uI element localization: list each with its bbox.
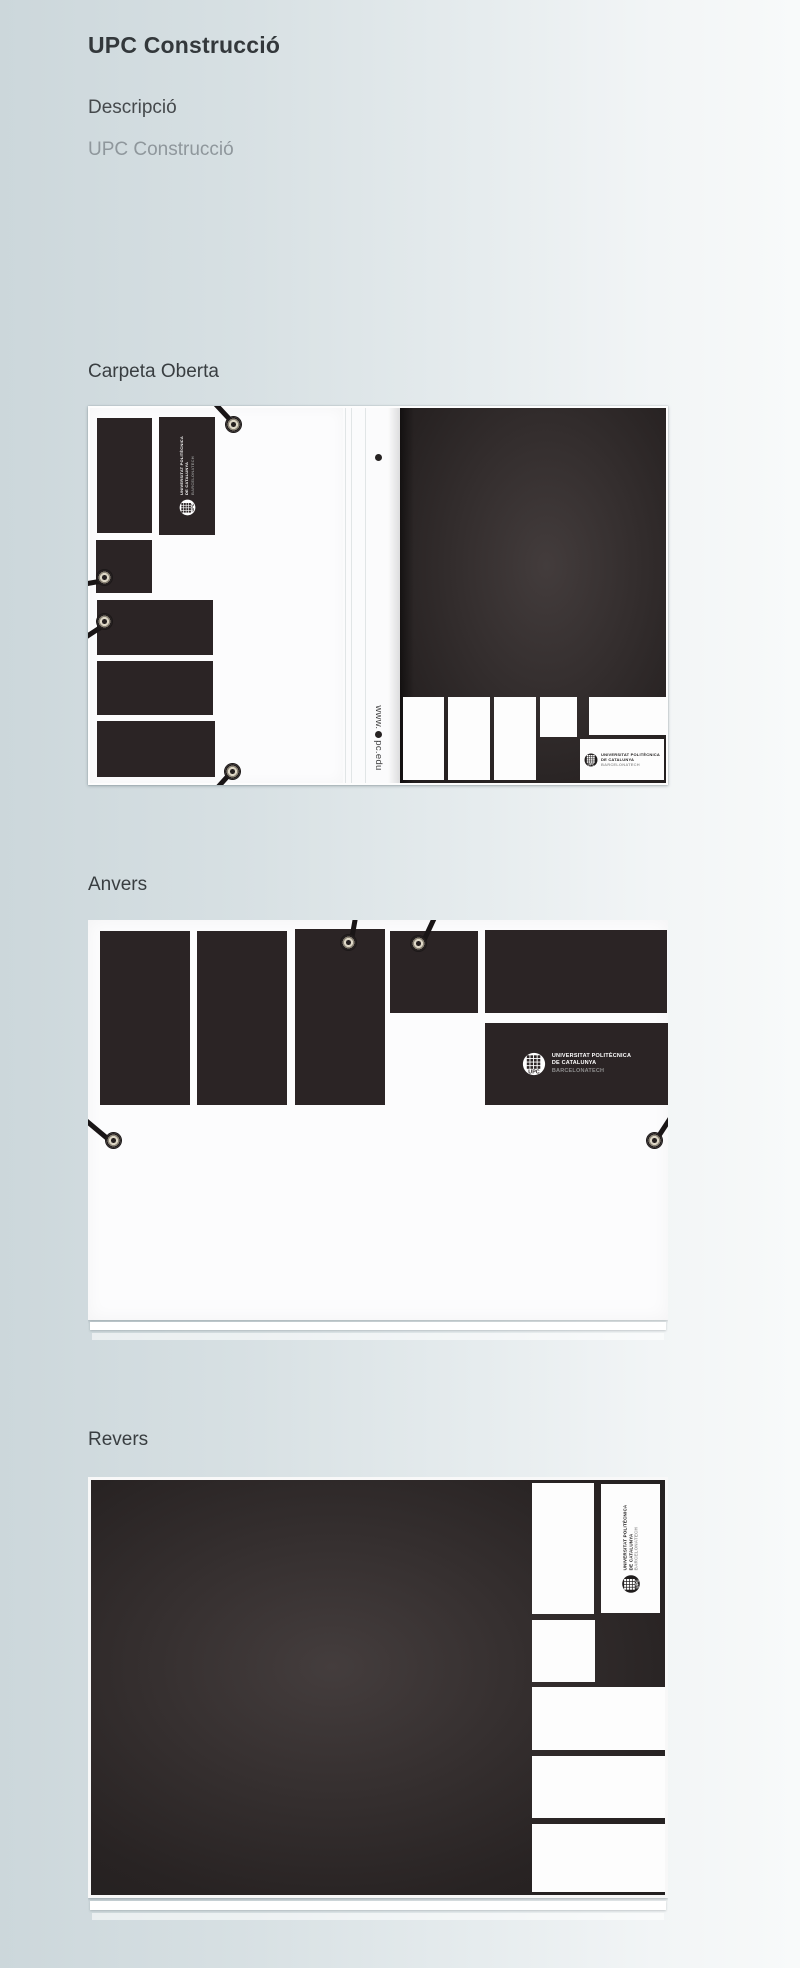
black-tag: [295, 929, 385, 1105]
black-tag: [97, 418, 152, 533]
white-card: [540, 697, 577, 737]
grommet-icon: [225, 764, 240, 779]
brand-name-line2: DE CATALUNYA: [628, 1504, 634, 1570]
folder-bottom-edge: [92, 1913, 664, 1920]
page-subtitle: Descripció: [88, 97, 177, 119]
spine-url-after: pc.edu: [374, 740, 385, 770]
brand-text: UNIVERSITAT POLITÈCNICA DE CATALUNYA BAR…: [552, 1053, 631, 1074]
upc-logo-icon: UPC: [621, 1574, 640, 1593]
anvers-image: UPC UNIVERSITAT POLITÈCNICA DE CATALUNYA…: [88, 920, 668, 1345]
white-card: [403, 697, 444, 780]
svg-text:UPC: UPC: [634, 1579, 639, 1588]
folder-bottom-edge: [90, 1901, 666, 1910]
white-card: [532, 1687, 665, 1750]
white-card: [494, 697, 536, 780]
black-tag: [485, 930, 667, 1013]
spine-crease: [351, 408, 352, 783]
spine-url: www. pc.edu: [367, 687, 391, 785]
spine-hole-icon: [375, 454, 382, 461]
grommet-icon: [341, 935, 356, 950]
black-tag: [97, 661, 213, 715]
brand-tagline: BARCELONATECH: [601, 762, 660, 767]
upc-logo-icon: UPC: [179, 499, 196, 516]
svg-text:UPC: UPC: [528, 1069, 539, 1075]
section-heading-revers: Revers: [88, 1429, 148, 1451]
folder-bottom-edge: [90, 1322, 666, 1330]
upc-logo: UPC UNIVERSITAT POLITÈCNICA DE CATALUNYA…: [605, 1491, 656, 1606]
grommet-icon: [97, 614, 112, 629]
upc-logo-icon: UPC: [522, 1052, 546, 1076]
black-tag: [390, 931, 478, 1013]
upc-logo: UPC UNIVERSITAT POLITÈCNICA DE CATALUNYA…: [485, 1023, 668, 1105]
spine-hole-icon: [376, 731, 383, 738]
brand-text: UNIVERSITAT POLITÈCNICA DE CATALUNYA BAR…: [622, 1504, 640, 1570]
upc-logo: UPC UNIVERSITAT POLITÈCNICA DE CATALUNYA…: [163, 424, 211, 528]
brand-tagline: BARCELONATECH: [552, 1068, 631, 1075]
white-card: [532, 1620, 595, 1682]
white-card: [448, 697, 490, 780]
upc-logo: UPC UNIVERSITAT POLITÈCNICA DE CATALUNYA…: [580, 739, 664, 780]
brand-name-line2: DE CATALUNYA: [552, 1060, 631, 1067]
spine-crease: [345, 408, 346, 783]
brand-text: UNIVERSITAT POLITÈCNICA DE CATALUNYA BAR…: [601, 752, 660, 768]
white-card: [532, 1483, 594, 1614]
grommet-icon: [106, 1133, 121, 1148]
page-description: UPC Construcció: [88, 139, 234, 161]
white-card: [532, 1756, 665, 1818]
carpeta-oberta-image: UPC UNIVERSITAT POLITÈCNICA DE CATALUNYA…: [88, 406, 668, 785]
vertical-logo-card: UPC UNIVERSITAT POLITÈCNICA DE CATALUNYA…: [601, 1484, 660, 1613]
grommet-icon: [97, 570, 112, 585]
revers-image: UPC UNIVERSITAT POLITÈCNICA DE CATALUNYA…: [88, 1477, 668, 1920]
logo-tag: UPC UNIVERSITAT POLITÈCNICA DE CATALUNYA…: [485, 1023, 668, 1105]
svg-text:UPC: UPC: [588, 762, 595, 766]
logo-card: UPC UNIVERSITAT POLITÈCNICA DE CATALUNYA…: [580, 739, 664, 780]
grommet-icon: [647, 1133, 662, 1148]
spine-crease: [365, 408, 366, 783]
brand-name-line1: UNIVERSITAT POLITÈCNICA: [622, 1504, 628, 1570]
grommet-icon: [411, 936, 426, 951]
upc-logo-icon: UPC: [584, 753, 598, 767]
folder-bottom-edge: [92, 1333, 664, 1340]
black-tag: [100, 931, 190, 1105]
brand-name-line1: UNIVERSITAT POLITÈCNICA: [552, 1053, 631, 1060]
white-card: [532, 1824, 665, 1892]
section-heading-carpeta-oberta: Carpeta Oberta: [88, 361, 219, 383]
svg-text:UPC: UPC: [191, 503, 195, 511]
black-tag: [97, 600, 213, 655]
grommet-icon: [226, 417, 241, 432]
brand-tagline: BARCELONATECH: [190, 436, 195, 495]
page-title: UPC Construcció: [88, 32, 280, 59]
brand-tagline: BARCELONATECH: [633, 1504, 639, 1570]
black-tag: [96, 540, 152, 593]
section-heading-anvers: Anvers: [88, 874, 147, 896]
vertical-logo-tag: UPC UNIVERSITAT POLITÈCNICA DE CATALUNYA…: [159, 417, 215, 535]
white-card: [589, 697, 666, 735]
black-tag: [97, 721, 215, 777]
brand-text: UNIVERSITAT POLITÈCNICA DE CATALUNYA BAR…: [179, 436, 195, 495]
spine-url-before: www.: [374, 705, 385, 729]
black-tag: [197, 931, 287, 1105]
